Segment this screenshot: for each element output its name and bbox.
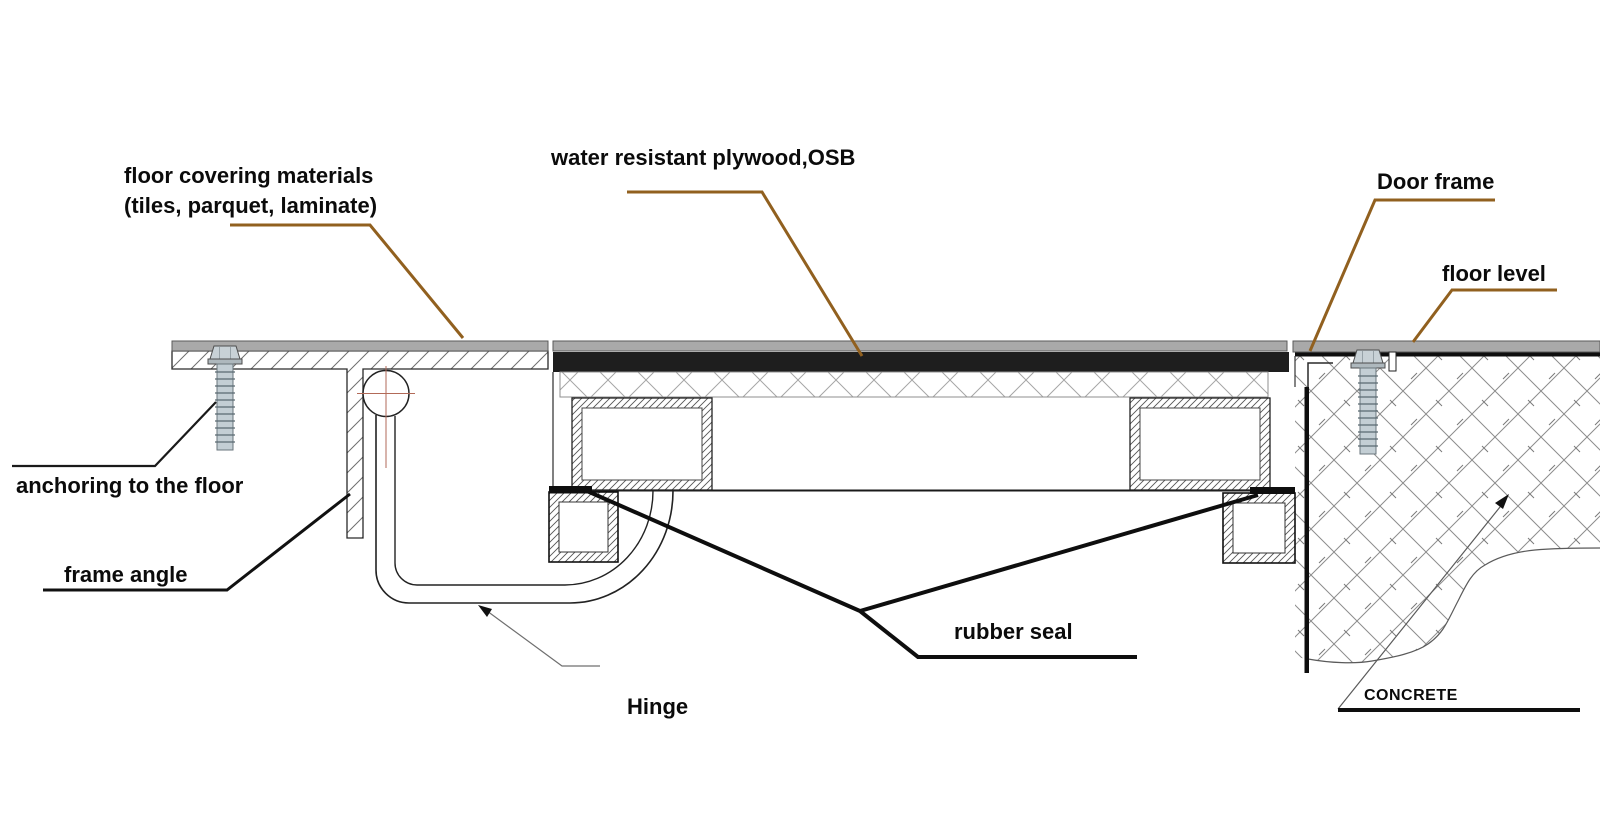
rubber-seal-right — [1250, 487, 1295, 494]
hinge-arrowhead-icon — [478, 605, 492, 617]
door-floor-covering — [553, 341, 1287, 351]
label-frame-angle: frame angle — [64, 561, 188, 589]
frame-tube-left — [549, 492, 618, 562]
label-hinge: Hinge — [627, 693, 688, 721]
diagram-canvas: floor covering materials (tiles, parquet… — [0, 0, 1600, 821]
leader-floor-level — [1413, 290, 1557, 342]
concrete-body — [1295, 356, 1600, 663]
label-plywood: water resistant plywood,OSB — [551, 144, 855, 172]
label-rubber-seal: rubber seal — [954, 618, 1073, 646]
floor-covering-right — [1293, 341, 1600, 352]
leader-anchoring — [12, 402, 216, 466]
construction-drawing — [0, 0, 1600, 821]
rubber-seal-left — [549, 486, 592, 494]
leader-plywood — [627, 192, 862, 356]
label-concrete: CONCRETE — [1364, 686, 1458, 706]
door-tube-left — [572, 398, 712, 490]
label-floor-level: floor level — [1442, 260, 1546, 288]
leader-hinge — [478, 605, 600, 666]
label-floor-covering-line2: (tiles, parquet, laminate) — [124, 192, 377, 220]
label-floor-covering-line1: floor covering materials — [124, 162, 373, 190]
leader-rubber-seal-right — [860, 495, 1258, 611]
plywood-osb-layer — [553, 352, 1289, 372]
label-anchoring: anchoring to the floor — [16, 472, 243, 500]
door-frame-vertical-plate — [1305, 387, 1310, 673]
door-leaf — [553, 341, 1289, 491]
anchor-screw-left — [208, 346, 242, 450]
door-tube-right — [1130, 398, 1270, 490]
door-frame-slot — [1389, 352, 1396, 371]
insulation-layer — [560, 372, 1268, 397]
leader-floor-covering — [230, 225, 463, 338]
label-door-frame: Door frame — [1377, 168, 1494, 196]
concrete-region — [1295, 355, 1600, 663]
